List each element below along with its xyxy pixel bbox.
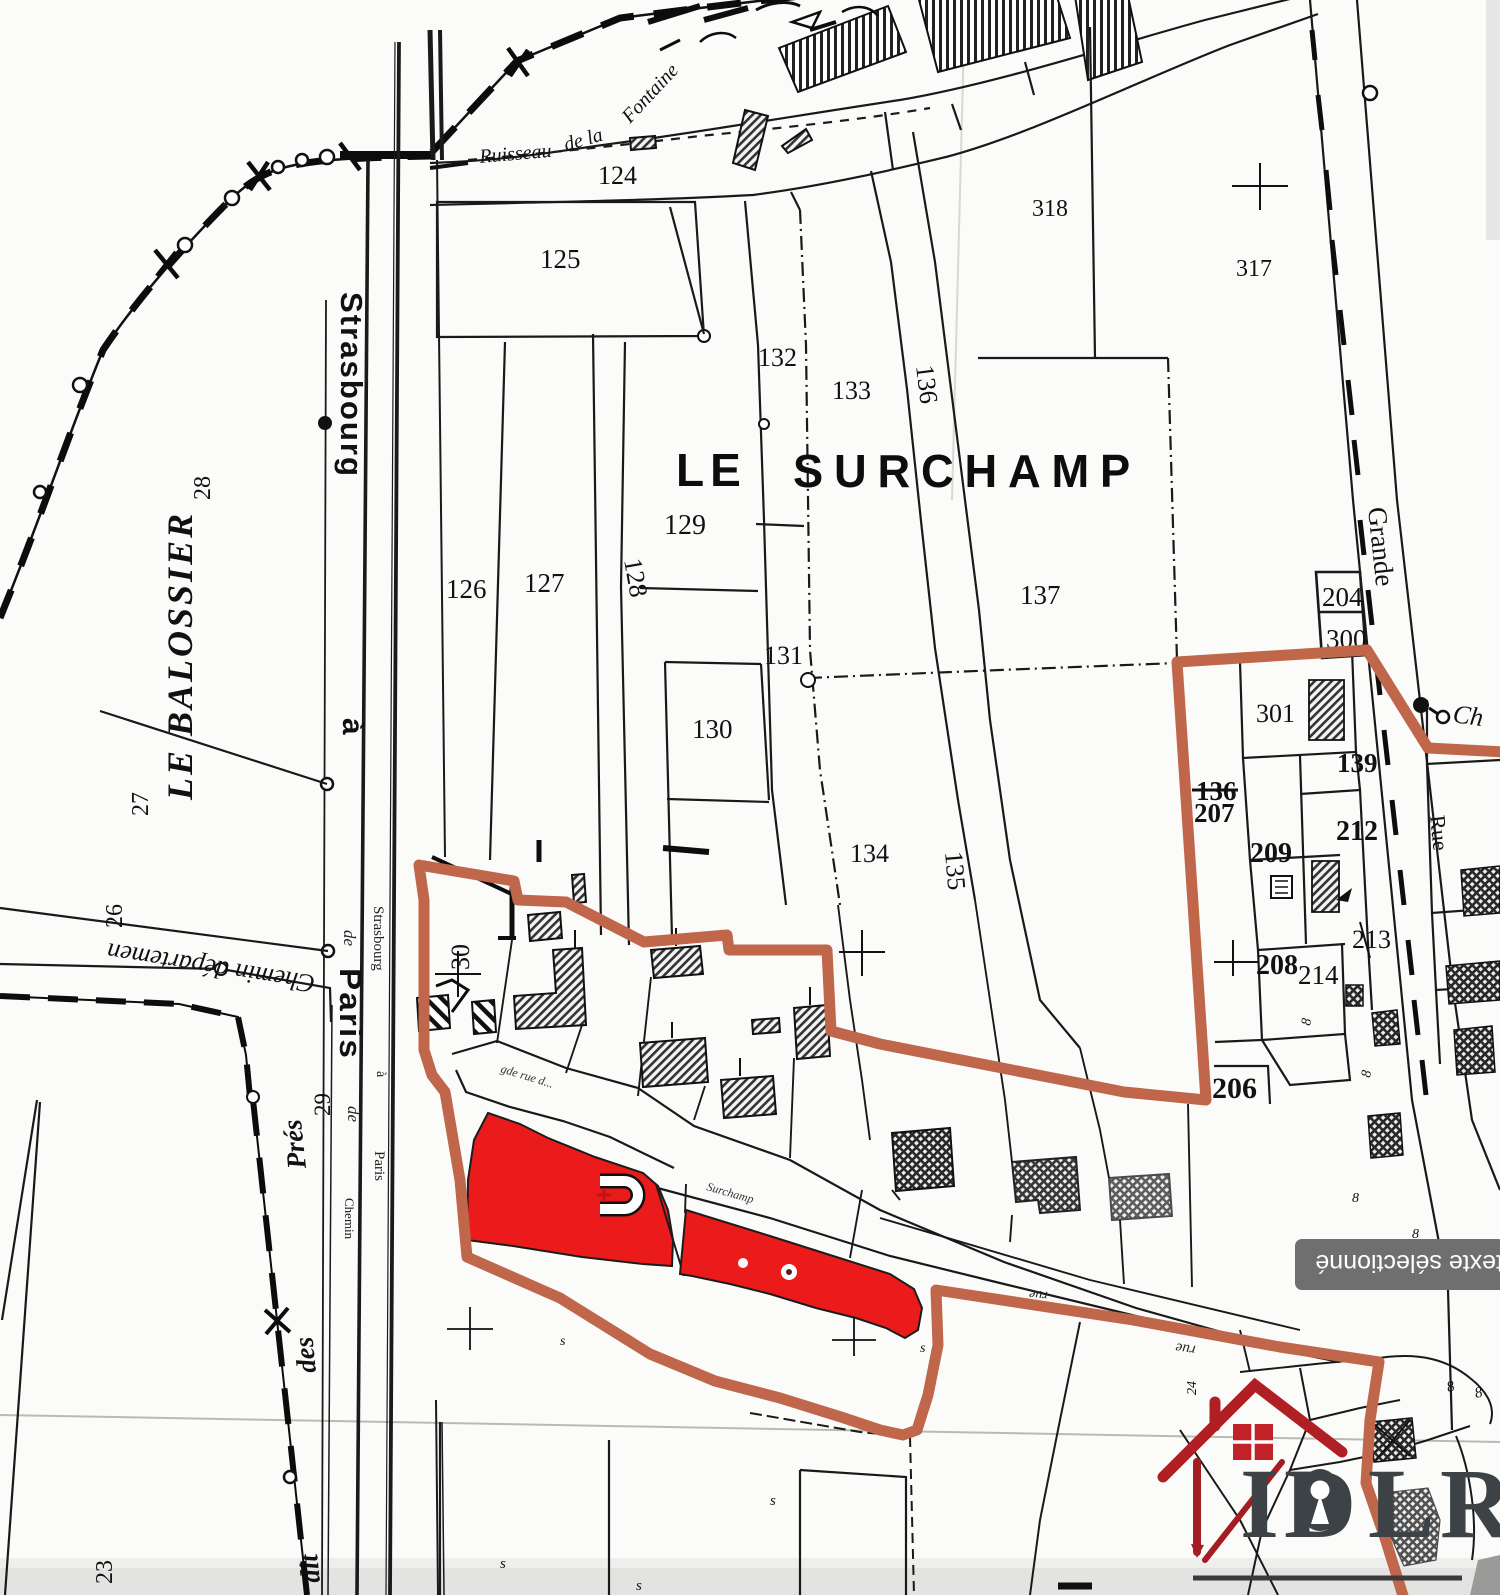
svg-text:134: 134 [850,839,889,868]
svg-text:de: de [340,930,359,947]
svg-text:s: s [560,1334,566,1349]
svg-text:213: 213 [1352,925,1391,954]
svg-text:301: 301 [1256,699,1295,728]
svg-text:à: à [336,718,369,735]
svg-text:207: 207 [1194,798,1235,828]
svg-text:131: 131 [764,641,803,670]
svg-text:135: 135 [939,850,971,891]
svg-text:124: 124 [598,161,637,190]
svg-text:29: 29 [310,1093,335,1116]
svg-text:24: 24 [1185,1381,1200,1395]
svg-text:125: 125 [540,244,581,274]
svg-text:129: 129 [664,510,706,541]
svg-text:8: 8 [1352,1191,1359,1206]
svg-text:132: 132 [758,343,797,372]
svg-text:126: 126 [446,574,487,604]
svg-text:Paris: Paris [333,968,368,1060]
svg-text:212: 212 [1336,816,1378,847]
svg-text:SURCHAMP: SURCHAMP [793,445,1141,497]
svg-text:s: s [500,1556,506,1572]
svg-text:Strasbourg: Strasbourg [334,292,369,478]
svg-text:rue: rue [1174,1339,1196,1358]
svg-text:28: 28 [190,476,216,500]
svg-text:214: 214 [1298,960,1339,990]
svg-text:317: 317 [1236,256,1272,282]
svg-text:s: s [770,1493,776,1509]
svg-text:texte sélectionné: texte sélectionné [1315,1249,1500,1277]
svg-text:206: 206 [1212,1072,1257,1105]
svg-text:139: 139 [1337,748,1378,778]
svg-text:à: à [373,1071,388,1078]
svg-text:133: 133 [832,376,871,405]
svg-text:Ch: Ch [1451,699,1485,732]
svg-text:318: 318 [1032,196,1068,222]
svg-text:209: 209 [1250,838,1292,869]
svg-text:I: I [1240,1448,1279,1559]
svg-text:des: des [288,1336,322,1375]
svg-text:Prés: Prés [277,1118,312,1171]
svg-text:s: s [920,1341,926,1356]
svg-text:Paris: Paris [371,1151,387,1181]
svg-text:Strasbourg: Strasbourg [370,906,386,971]
svg-text:23: 23 [92,1560,118,1584]
svg-text:30: 30 [446,944,475,970]
svg-text:208: 208 [1256,950,1298,981]
svg-text:26: 26 [102,904,128,928]
svg-text:27: 27 [128,792,154,816]
svg-text:LE BALOSSIER: LE BALOSSIER [160,511,200,801]
svg-text:136: 136 [910,363,944,405]
svg-text:130: 130 [692,714,733,744]
svg-text:R: R [1440,1448,1500,1559]
svg-text:LE: LE [676,444,747,496]
svg-text:Chemin: Chemin [342,1198,357,1240]
svg-text:de: de [344,1106,363,1123]
svg-text:s: s [636,1578,642,1594]
svg-text:dit: dit [293,1552,326,1585]
svg-text:204: 204 [1322,582,1363,612]
svg-text:137: 137 [1020,580,1061,610]
svg-text:127: 127 [524,568,565,598]
svg-text:L: L [1368,1448,1435,1559]
